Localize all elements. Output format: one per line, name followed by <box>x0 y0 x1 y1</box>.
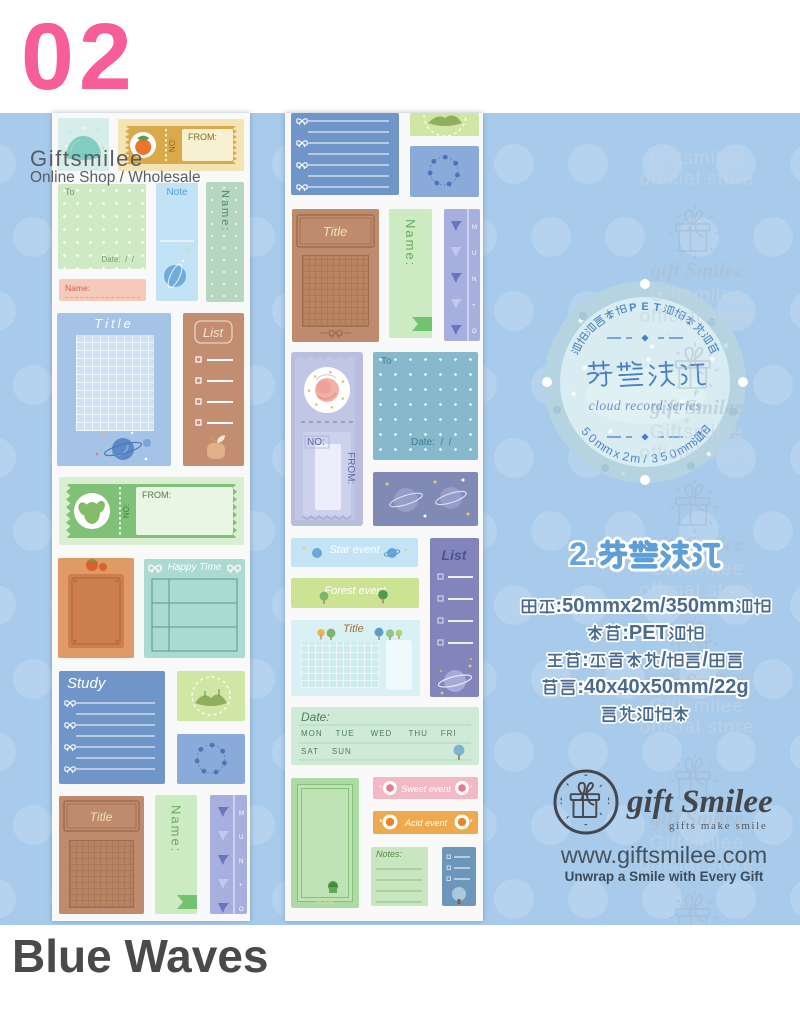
svg-text:FROM:: FROM: <box>188 132 217 142</box>
svg-text:NO:: NO: <box>168 138 177 152</box>
svg-text:Title: Title <box>90 810 113 824</box>
svg-text:N: N <box>472 277 476 283</box>
svg-text:FROM:: FROM: <box>142 490 171 500</box>
svg-text:HOME: HOME <box>316 900 334 906</box>
svg-text:NO:: NO: <box>122 504 131 518</box>
svg-text:E: E <box>641 301 648 313</box>
svg-text:O: O <box>472 329 477 335</box>
svg-text:gifts make smile: gifts make smile <box>669 820 767 832</box>
svg-text:FROM:: FROM: <box>345 452 356 484</box>
svg-text:List: List <box>203 325 225 340</box>
svg-text:gift Smilee: gift Smilee <box>626 784 773 820</box>
svg-text:m: m <box>630 451 642 466</box>
svg-text:+: + <box>239 883 243 889</box>
svg-text:O: O <box>239 907 244 913</box>
svg-text:Acid event: Acid event <box>404 818 448 828</box>
svg-text:List: List <box>442 547 468 563</box>
svg-text:U: U <box>239 835 243 841</box>
svg-text:+: + <box>472 303 476 309</box>
svg-text:U: U <box>472 251 476 257</box>
svg-text:cloud record series: cloud record series <box>589 398 702 413</box>
svg-text:Sweet event: Sweet event <box>401 784 451 794</box>
svg-text:Title: Title <box>323 224 347 239</box>
svg-text:N: N <box>239 859 243 865</box>
svg-text:NO:: NO: <box>307 437 325 448</box>
svg-text:M: M <box>239 811 244 817</box>
svg-text:M: M <box>472 225 477 231</box>
